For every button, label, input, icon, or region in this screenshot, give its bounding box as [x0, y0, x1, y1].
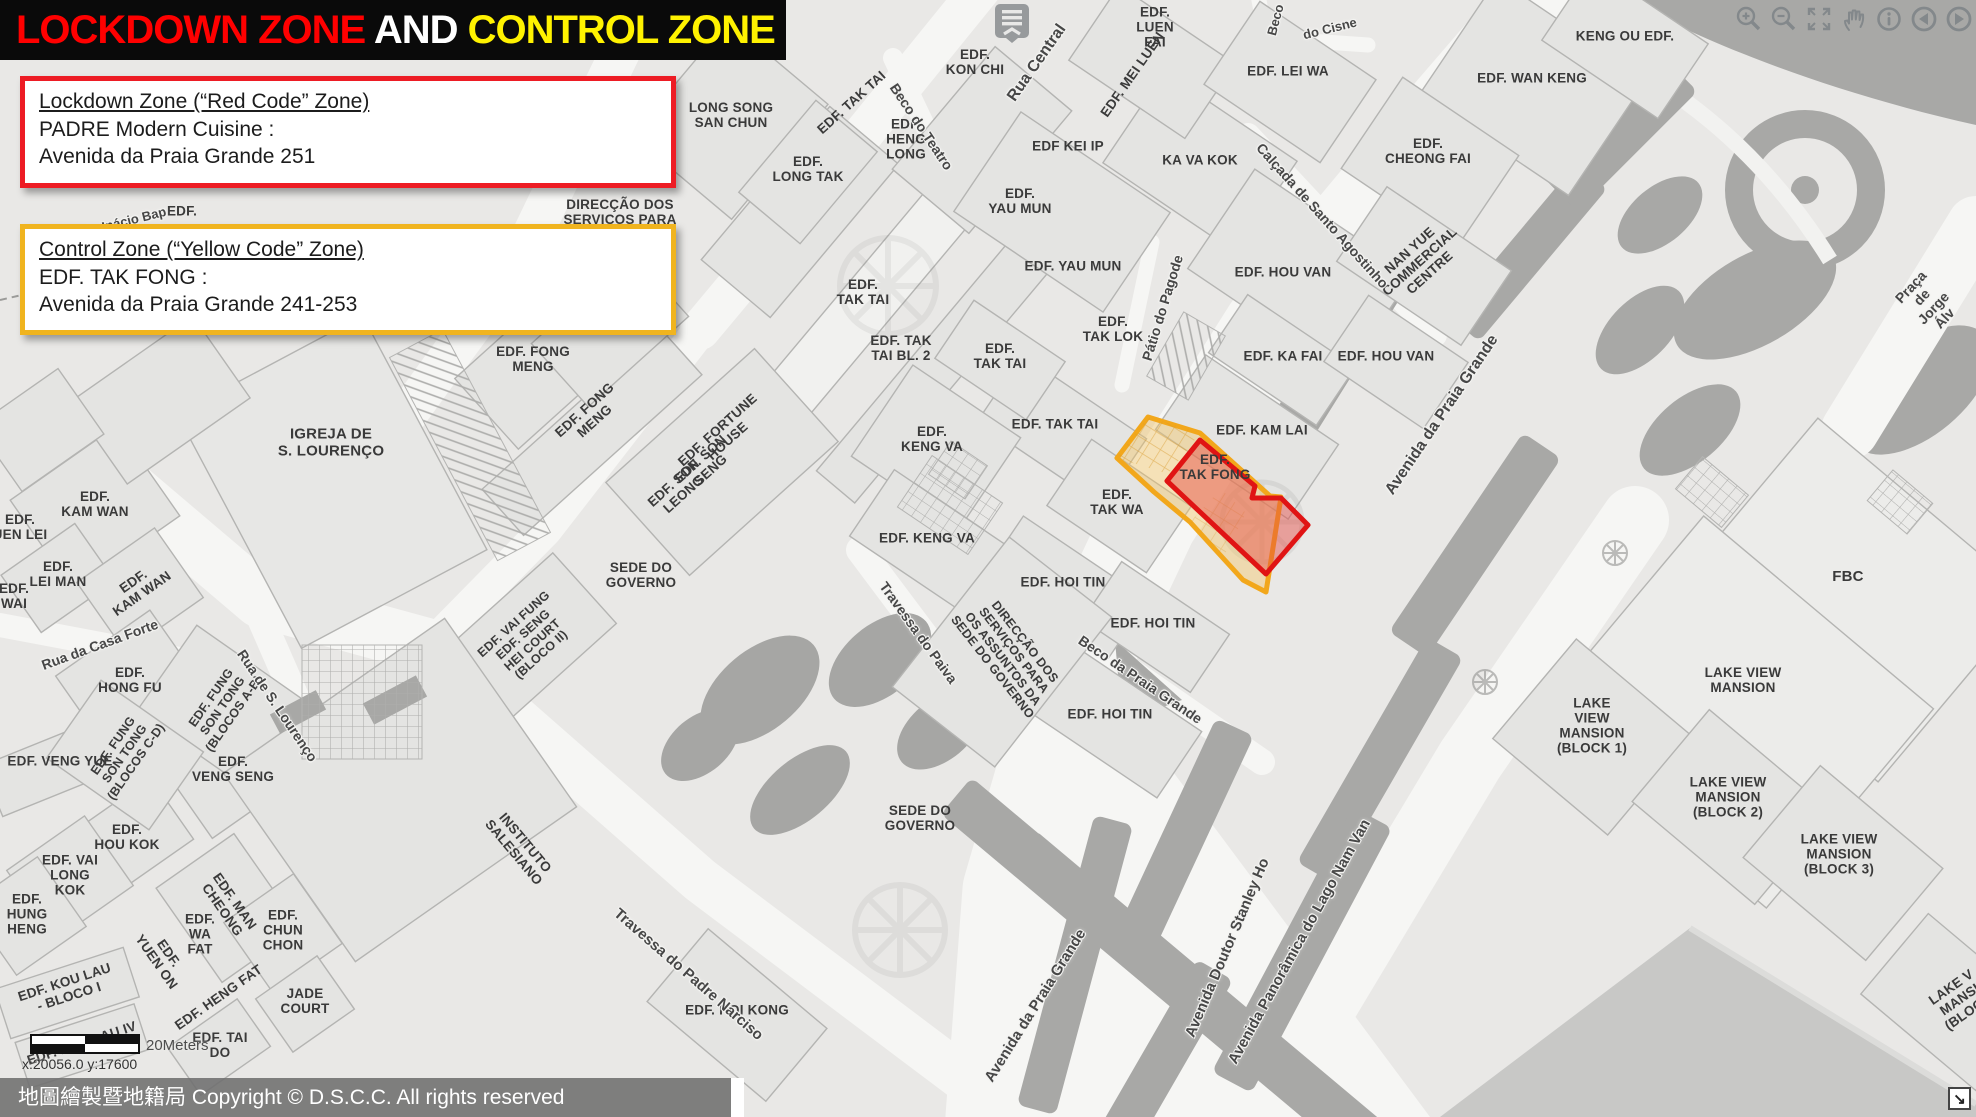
control-legend-heading: Control Zone (“Yellow Code” Zone) [39, 236, 657, 264]
bookmark-control[interactable] [992, 2, 1032, 44]
identify-button[interactable] [1874, 4, 1904, 34]
zoom-out-button[interactable] [1769, 4, 1799, 34]
scale-bar [30, 1034, 140, 1054]
control-legend-line3: Avenida da Praia Grande 241-253 [39, 291, 657, 319]
lockdown-legend-heading: Lockdown Zone (“Red Code” Zone) [39, 88, 657, 116]
map-screenshot: LONG SONG SAN CHUNEDF. TAK TAIEDF. HENG … [0, 0, 1976, 1117]
expand-arrow-icon: ↘ [1953, 1090, 1966, 1108]
control-legend: Control Zone (“Yellow Code” Zone) EDF. T… [20, 224, 676, 335]
info-icon [1874, 4, 1904, 34]
pan-button[interactable] [1839, 4, 1869, 34]
copyright-bar-notch [731, 1078, 744, 1117]
fountain-wheel-icon [1603, 541, 1627, 565]
arrow-right-icon [1944, 4, 1974, 34]
banner-and-text: AND [365, 8, 467, 53]
full-extent-button[interactable] [1804, 4, 1834, 34]
lockdown-legend-line3: Avenida da Praia Grande 251 [39, 143, 657, 171]
lockdown-legend: Lockdown Zone (“Red Code” Zone) PADRE Mo… [20, 76, 676, 188]
next-view-button[interactable] [1944, 4, 1974, 34]
fountain-wheel-icon [1473, 670, 1497, 694]
previous-view-button[interactable] [1909, 4, 1939, 34]
expand-corner-button[interactable]: ↘ [1948, 1087, 1971, 1110]
control-legend-line2: EDF. TAK FONG : [39, 264, 657, 292]
fountain-wheel-icon [840, 238, 936, 334]
arrow-left-icon [1909, 4, 1939, 34]
title-banner: LOCKDOWN ZONE AND CONTROL ZONE [0, 0, 786, 60]
scale-bar-label: 20Meters [146, 1037, 209, 1054]
zoom-in-icon [1734, 4, 1764, 34]
zoom-out-icon [1769, 4, 1799, 34]
full-extent-icon [1804, 4, 1834, 34]
banner-control-text: CONTROL ZONE [468, 8, 775, 53]
cursor-coordinates: x:20056.0 y:17600 [22, 1056, 137, 1072]
pan-hand-icon [1839, 4, 1869, 34]
banner-lockdown-text: LOCKDOWN ZONE [16, 8, 365, 53]
copyright-bar: 地圖繪製暨地籍局 Copyright © D.S.C.C. All rights… [0, 1078, 731, 1117]
zoom-in-button[interactable] [1734, 4, 1764, 34]
bookmark-list-icon [992, 2, 1032, 44]
hatched-area [302, 645, 422, 759]
map-toolbar [1734, 4, 1974, 34]
lockdown-legend-line2: PADRE Modern Cuisine : [39, 116, 657, 144]
fountain-wheel-icon [855, 885, 945, 975]
